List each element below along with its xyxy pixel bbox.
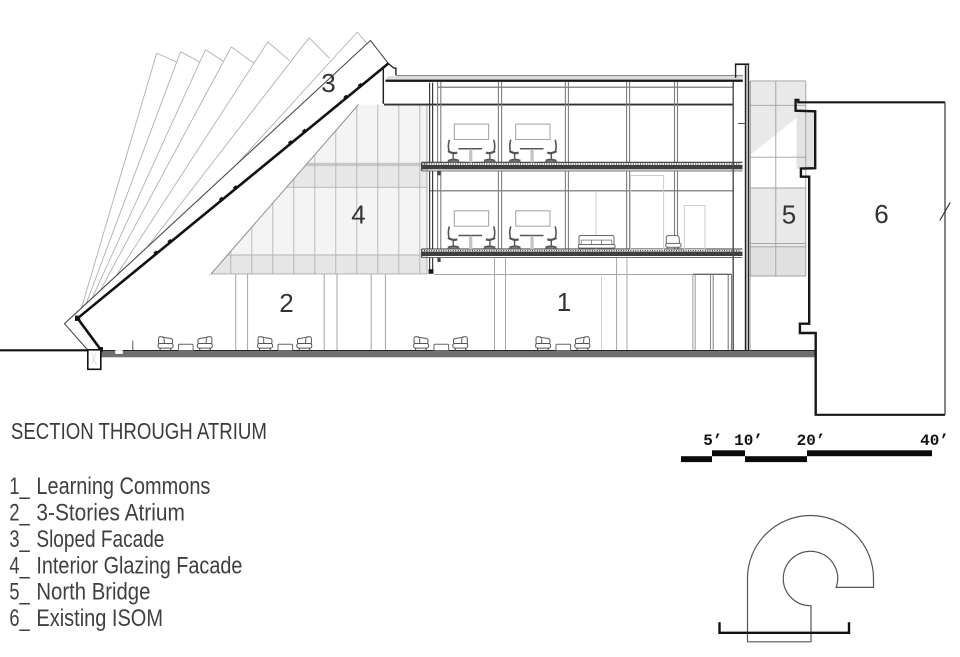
svg-text:1_: 1_ bbox=[9, 473, 30, 500]
svg-text:2_: 2_ bbox=[9, 499, 30, 526]
svg-text:40’: 40’ bbox=[920, 432, 949, 450]
svg-text:1: 1 bbox=[557, 287, 571, 317]
svg-text:Sloped Facade: Sloped Facade bbox=[36, 526, 164, 553]
svg-text:5’: 5’ bbox=[703, 432, 722, 450]
svg-text:3-Stories Atrium: 3-Stories Atrium bbox=[36, 499, 185, 526]
svg-text:3: 3 bbox=[321, 68, 335, 98]
svg-text:SECTION THROUGH ATRIUM: SECTION THROUGH ATRIUM bbox=[11, 418, 267, 444]
svg-text:4_: 4_ bbox=[9, 552, 30, 579]
svg-text:3_: 3_ bbox=[9, 526, 30, 553]
svg-text:6: 6 bbox=[874, 199, 888, 229]
svg-text:20’: 20’ bbox=[797, 432, 826, 450]
svg-text:North Bridge: North Bridge bbox=[36, 579, 150, 606]
svg-text:10’: 10’ bbox=[734, 432, 763, 450]
svg-text:2: 2 bbox=[279, 288, 293, 318]
svg-text:Interior Glazing Facade: Interior Glazing Facade bbox=[36, 552, 242, 579]
svg-text:4: 4 bbox=[351, 199, 365, 229]
svg-text:Learning Commons: Learning Commons bbox=[36, 473, 210, 500]
svg-text:Existing ISOM: Existing ISOM bbox=[36, 605, 163, 632]
svg-text:6_: 6_ bbox=[9, 605, 30, 632]
svg-text:5: 5 bbox=[782, 199, 796, 229]
svg-text:5_: 5_ bbox=[9, 579, 30, 606]
